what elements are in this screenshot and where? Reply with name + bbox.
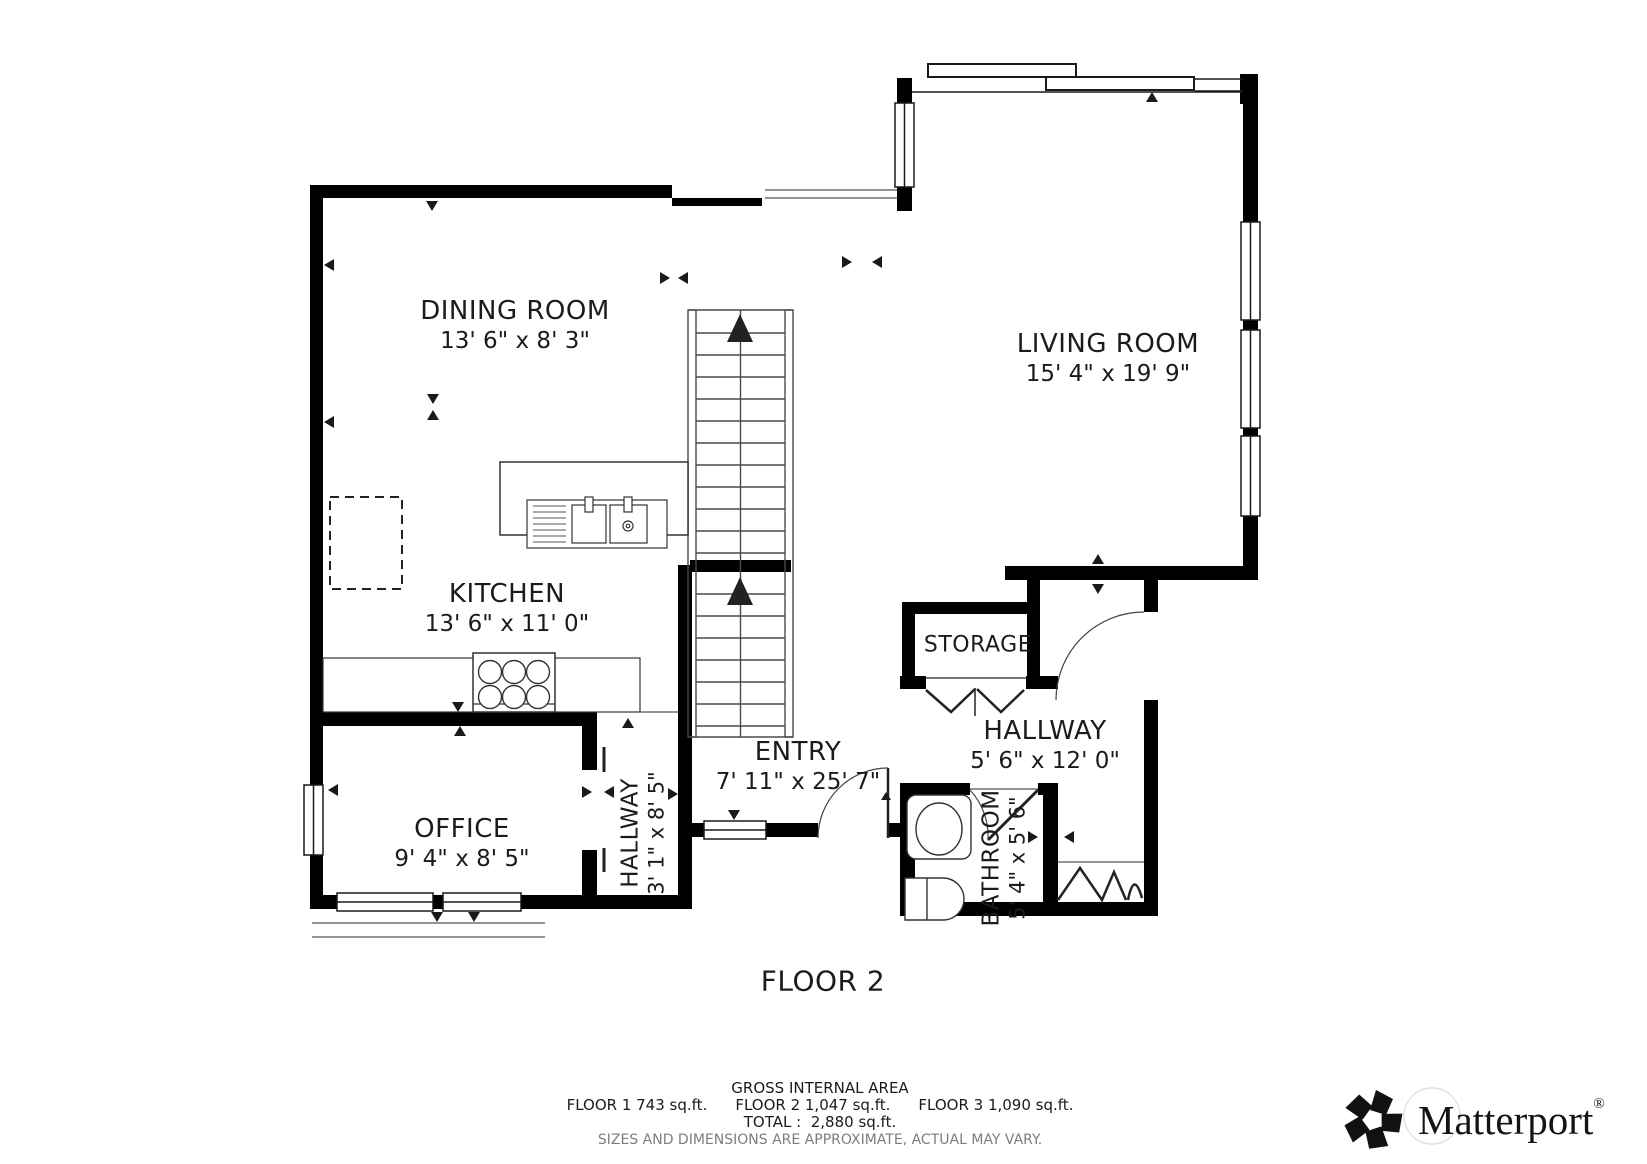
staircase xyxy=(688,310,793,737)
sliding-door xyxy=(912,64,1243,92)
total-label: TOTAL : xyxy=(744,1113,801,1131)
room-dimensions: 9' 4" x 8' 5" xyxy=(394,846,529,872)
stove-icon xyxy=(473,653,555,712)
room-dimensions: 5' 6" x 12' 0" xyxy=(970,748,1120,774)
brand-text: Matterport xyxy=(1418,1097,1593,1143)
floor-title: FLOOR 2 xyxy=(761,965,885,998)
room-name: ENTRY xyxy=(716,737,880,767)
room-dimensions: 5' 4" x 5' 6" xyxy=(1006,789,1030,926)
disclaimer-text: SIZES AND DIMENSIONS ARE APPROXIMATE, AC… xyxy=(553,1133,1088,1149)
room-label-entry: ENTRY 7' 11" x 25' 7" xyxy=(716,737,880,795)
room-name: STORAGE xyxy=(924,633,1032,658)
room-name: HALLWAY xyxy=(970,716,1120,746)
room-name: HALLWAY xyxy=(618,771,644,894)
room-name: DINING ROOM xyxy=(420,296,610,326)
room-label-hallway-small: HALLWAY 3' 1" x 8' 5" xyxy=(618,771,669,894)
room-name: KITCHEN xyxy=(425,579,589,609)
hallway-door xyxy=(1056,612,1144,700)
fridge-dashed-icon xyxy=(330,497,402,589)
gross-area-label: GROSS INTERNAL AREA xyxy=(553,1080,1088,1097)
room-label-kitchen: KITCHEN 13' 6" x 11' 0" xyxy=(425,579,589,637)
total-area-line: TOTAL : 2,880 sq.ft. xyxy=(553,1114,1088,1131)
room-label-hallway-main: HALLWAY 5' 6" x 12' 0" xyxy=(970,716,1120,774)
total-value: 2,880 sq.ft. xyxy=(811,1113,896,1131)
room-label-bathroom: BATHROOM 5' 4" x 5' 6" xyxy=(979,789,1030,926)
floor2-area: FLOOR 2 1,047 sq.ft. xyxy=(735,1096,890,1114)
vanity-sink-icon xyxy=(905,878,964,920)
storage-bifold-doors-icon xyxy=(926,678,1026,716)
sink-icon xyxy=(527,497,667,548)
room-label-office: OFFICE 9' 4" x 8' 5" xyxy=(394,814,529,872)
room-dimensions: 3' 1" x 8' 5" xyxy=(645,771,669,894)
room-name: LIVING ROOM xyxy=(1017,329,1199,359)
room-name: BATHROOM xyxy=(979,789,1005,926)
registered-mark: ® xyxy=(1593,1096,1604,1112)
room-label-living: LIVING ROOM 15' 4" x 19' 9" xyxy=(1017,329,1199,387)
room-dimensions: 15' 4" x 19' 9" xyxy=(1017,361,1199,387)
room-label-storage: STORAGE xyxy=(924,633,1032,658)
closet-doors-icon xyxy=(1058,868,1142,900)
matterport-wordmark: Matterport® xyxy=(1418,1096,1605,1144)
floor3-area: FLOOR 3 1,090 sq.ft. xyxy=(918,1096,1073,1114)
toilet-icon xyxy=(907,795,971,859)
floorplan-page: DINING ROOM 13' 6" x 8' 3" LIVING ROOM 1… xyxy=(0,0,1647,1164)
footer-area-summary: GROSS INTERNAL AREA FLOOR 1 743 sq.ft.FL… xyxy=(553,1080,1088,1149)
floor-areas-line: FLOOR 1 743 sq.ft.FLOOR 2 1,047 sq.ft.FL… xyxy=(553,1097,1088,1114)
room-dimensions: 13' 6" x 11' 0" xyxy=(425,611,589,637)
room-label-dining: DINING ROOM 13' 6" x 8' 3" xyxy=(420,296,610,354)
floor1-area: FLOOR 1 743 sq.ft. xyxy=(567,1096,708,1114)
room-name: OFFICE xyxy=(394,814,529,844)
room-dimensions: 13' 6" x 8' 3" xyxy=(420,328,610,354)
room-dimensions: 7' 11" x 25' 7" xyxy=(716,769,880,795)
